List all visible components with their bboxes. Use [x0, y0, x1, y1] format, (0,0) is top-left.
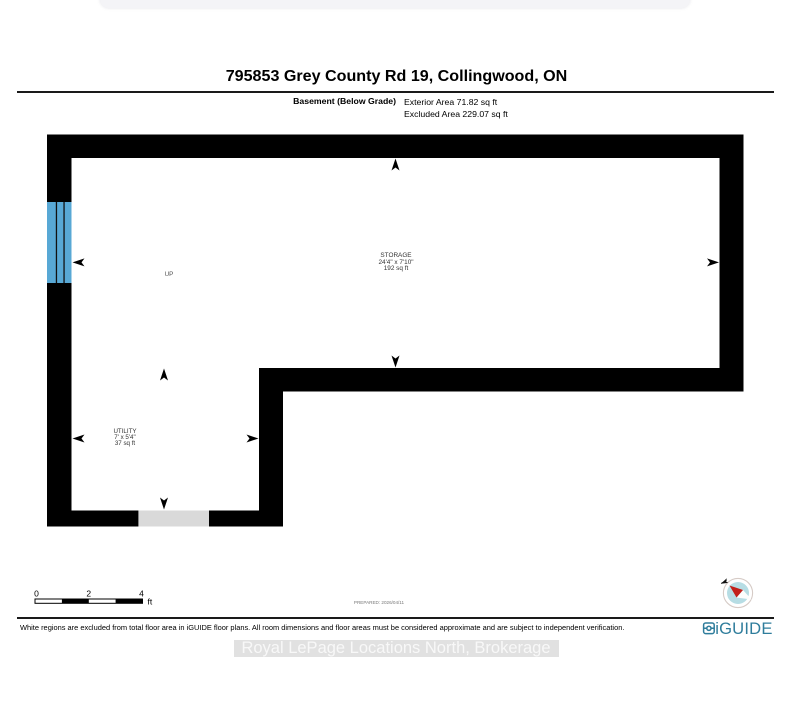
- svg-text:0: 0: [34, 589, 39, 599]
- svg-text:ft: ft: [148, 597, 153, 607]
- svg-text:4: 4: [139, 589, 144, 599]
- svg-text:iGUIDE: iGUIDE: [715, 619, 772, 638]
- svg-text:PREPARED: 2026/04/11: PREPARED: 2026/04/11: [354, 600, 405, 605]
- svg-text:2: 2: [86, 589, 91, 599]
